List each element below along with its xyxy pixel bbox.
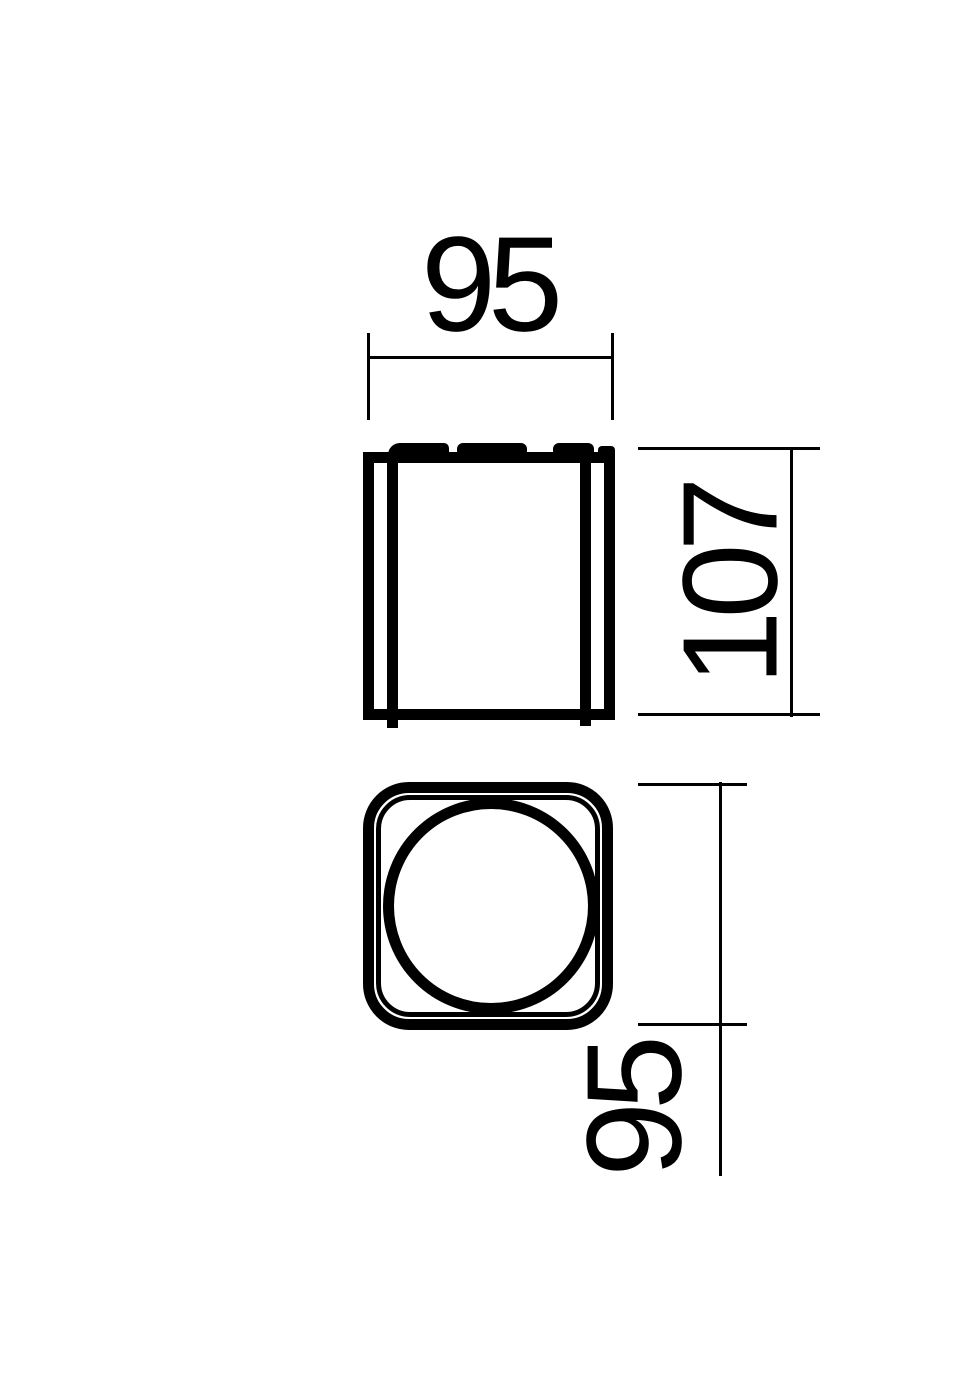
front-size-extension-line-top [638, 783, 747, 786]
top-width-dimension-label: 95 [421, 217, 555, 352]
side-view-inner-edge-right [580, 452, 591, 726]
front-size-extension-line-bottom [638, 1023, 747, 1026]
front-size-dimension-line [719, 782, 722, 1176]
side-height-extension-line-bottom [638, 713, 820, 716]
top-width-extension-line-right [611, 333, 614, 420]
front-size-dimension-label: 95 [567, 1043, 702, 1177]
side-height-extension-line-top [638, 447, 820, 450]
side-view-outline [363, 452, 615, 720]
lens-circle [383, 798, 599, 1014]
side-height-dimension-label: 107 [663, 485, 798, 686]
side-height-dimension-line [790, 447, 793, 717]
top-width-dimension-line [368, 356, 614, 359]
side-view-inner-edge-left [387, 452, 398, 728]
top-width-extension-line-left [367, 333, 370, 420]
technical-drawing-canvas: 95 107 95 [0, 0, 980, 1400]
